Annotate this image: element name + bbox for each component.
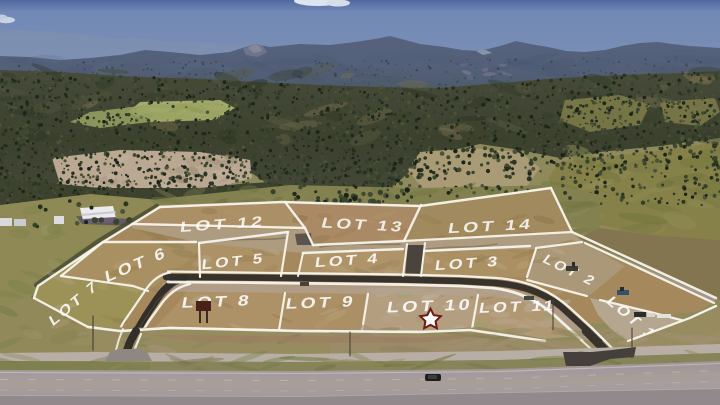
svg-text:LOT 9: LOT 9 — [284, 292, 357, 312]
svg-text:LOT 8: LOT 8 — [180, 291, 253, 311]
svg-text:LOT 11: LOT 11 — [478, 298, 558, 317]
